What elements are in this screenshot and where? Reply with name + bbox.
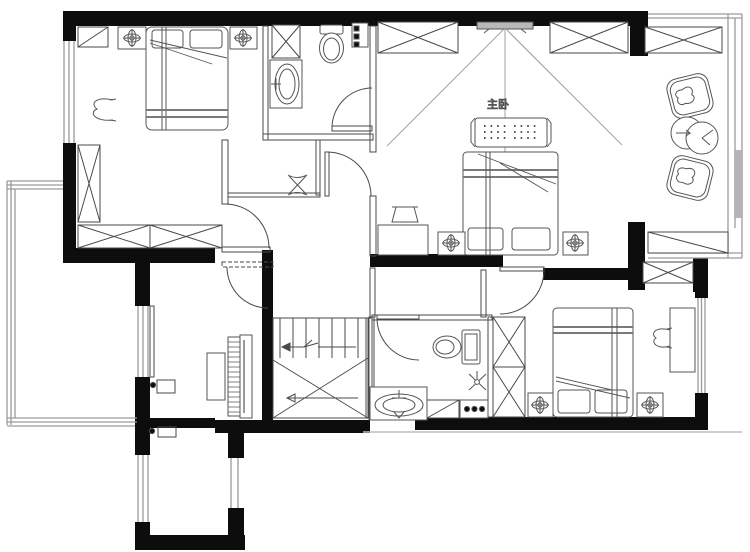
bed-bench-icon: [471, 118, 551, 147]
pillow-icon: [512, 228, 550, 250]
master-bedroom: 主卧: [378, 22, 622, 255]
pillow-icon: [190, 30, 222, 48]
window-icon: [728, 14, 742, 258]
door-arc-icon: [325, 152, 371, 196]
double-bed-icon: [553, 308, 633, 417]
bedroom-lower-right: [528, 308, 695, 417]
pillow-icon: [558, 390, 590, 413]
chair-icon: [654, 328, 672, 348]
wardrobe-x-icon: [150, 225, 222, 248]
shower-head-icon: [469, 371, 486, 390]
door-arc-icon: [500, 267, 544, 314]
piano-icon: [228, 335, 252, 418]
wardrobe-x-icon: [78, 225, 150, 248]
wardrobe-x-icon: [643, 262, 693, 283]
door-arc-icon: [222, 204, 270, 252]
window-icon: [698, 298, 705, 393]
master-bedroom-label: 主卧: [487, 98, 509, 111]
window-icon: [138, 455, 148, 522]
window-icon: [231, 458, 238, 508]
door-arc-icon: [377, 315, 419, 360]
cabinet-diagonal-icon: [78, 27, 108, 47]
washbasin-icon: [270, 60, 302, 108]
chair-icon: [93, 99, 116, 121]
tea-table-icon: [671, 117, 718, 154]
shelf-dots-icon: [352, 23, 368, 47]
desk-icon: [670, 308, 695, 372]
dressing-table-icon: [378, 207, 428, 255]
wardrobe-x-icon: [493, 367, 525, 417]
stool-icon: [288, 175, 307, 195]
piano-room: [207, 335, 252, 418]
wardrobe-x-icon: [378, 22, 458, 53]
armchair-icon: [665, 154, 715, 203]
sitting-bay: [665, 72, 718, 203]
window-mullion: [734, 150, 743, 218]
wardrobe-x-icon: [78, 145, 100, 222]
washbasin-icon: [370, 387, 427, 420]
bedroom-top-left: [93, 27, 257, 130]
window-icon: [138, 306, 148, 377]
wardrobe-x-icon: [272, 25, 300, 58]
floor-plan-canvas: 主卧: [0, 0, 750, 552]
cabinet-diagonal-icon: [648, 232, 728, 253]
toilet-icon: [320, 25, 344, 63]
toilet-icon: [433, 330, 480, 364]
window-icon: [64, 41, 74, 143]
cabinet-diagonal-icon: [427, 400, 459, 418]
armchair-icon: [665, 72, 715, 121]
wardrobe-x-icon: [493, 317, 525, 367]
double-bed-icon: [463, 152, 558, 255]
wardrobe-x-icon: [645, 27, 722, 53]
double-bed-icon: [146, 27, 228, 130]
hallway: [288, 175, 307, 195]
door-arc-icon: [332, 88, 372, 131]
wardrobe-x-icon: [550, 22, 628, 53]
floor-plan-drawing: 主卧: [0, 0, 750, 552]
piano-bench-icon: [207, 353, 225, 400]
staircase-icon: [273, 318, 368, 418]
door-hinge-dot-icon: [149, 380, 176, 437]
shelf-dots-icon: [460, 400, 488, 418]
